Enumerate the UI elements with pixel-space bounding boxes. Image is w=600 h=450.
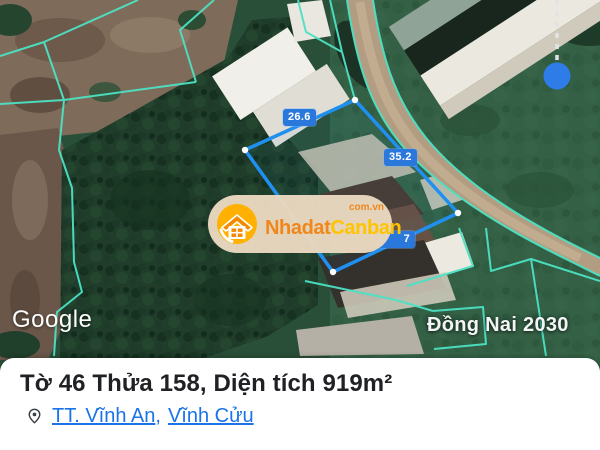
parcel-vertex	[330, 269, 336, 275]
brand-name: NhadatCanban	[265, 218, 401, 238]
brand-domain: com.vn	[349, 203, 384, 213]
location-row: TT. Vĩnh An,Vĩnh Cửu	[26, 404, 600, 428]
parcel-title: Tờ 46 Thửa 158, Diện tích 919m²	[20, 371, 584, 397]
location-link-ward[interactable]: TT. Vĩnh An	[52, 404, 155, 428]
edge-measurement-chip: 26.6	[283, 109, 316, 126]
brand-name-part1: Nhadat	[265, 217, 330, 239]
parcel-vertex	[455, 210, 461, 216]
google-logo[interactable]: Google	[12, 306, 92, 334]
brand-name-part2: Canban	[330, 217, 401, 239]
parcel-vertex	[352, 97, 358, 103]
location-separator: ,	[155, 404, 161, 428]
location-marker[interactable]	[544, 63, 571, 90]
map-pin-icon	[26, 405, 43, 427]
planning-overlay-label: Đồng Nai 2030	[427, 314, 569, 337]
location-link-district[interactable]: Vĩnh Cửu	[168, 404, 254, 428]
brand-house-icon	[217, 204, 257, 244]
parcel-info-panel: Tờ 46 Thửa 158, Diện tích 919m² TT. Vĩnh…	[0, 358, 600, 450]
watermark: NhadatCanban com.vn	[208, 195, 392, 253]
parcel-vertex	[242, 147, 248, 153]
edge-measurement-chip: 35.2	[384, 149, 417, 166]
